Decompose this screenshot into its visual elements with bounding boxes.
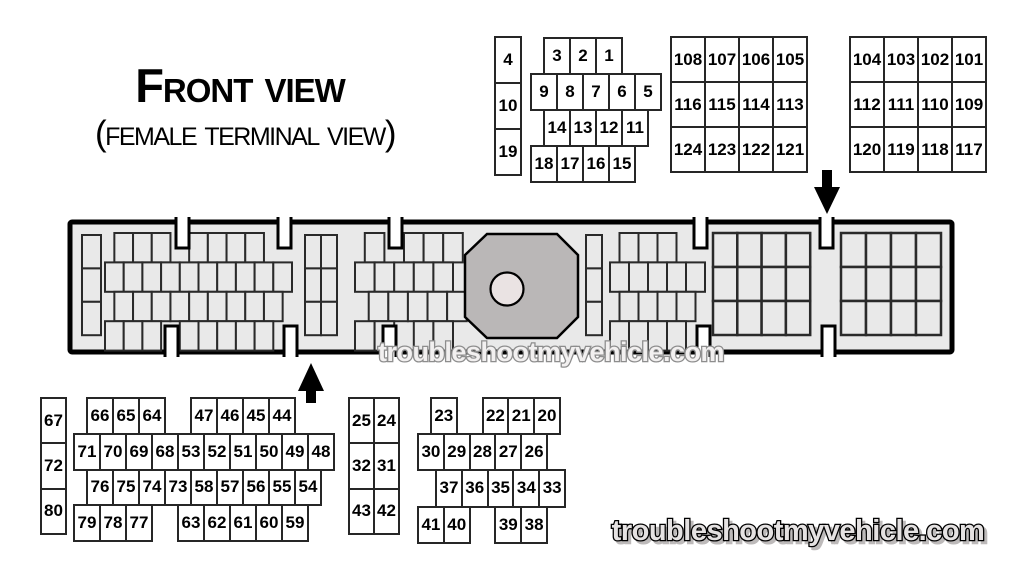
pin-cell-124: 124 [670, 126, 706, 173]
pin-cell-32: 32 [348, 442, 375, 489]
terminal-slot [443, 233, 463, 262]
terminal-slot [737, 233, 761, 267]
top-notch [694, 217, 707, 248]
terminal-slot [762, 233, 786, 267]
pin-cell-36: 36 [461, 469, 489, 507]
pin-cell-73: 73 [164, 469, 192, 507]
terminal-slot [152, 292, 171, 321]
pin-cell-113: 113 [772, 81, 808, 128]
pin-cell-103: 103 [883, 36, 919, 83]
pin-cell-60: 60 [255, 504, 283, 542]
pin-cell-68: 68 [151, 433, 179, 471]
pin-cell-61: 61 [229, 504, 257, 542]
pin-cell-118: 118 [917, 126, 953, 173]
terminal-slot [916, 301, 941, 335]
terminal-slot [124, 321, 143, 350]
terminal-slot [208, 233, 227, 262]
terminal-slot [189, 233, 208, 262]
terminal-slot [841, 301, 866, 335]
top-notch [278, 217, 291, 248]
terminal-slot [841, 267, 866, 301]
terminal-slot [180, 262, 199, 291]
terminal-slot [866, 267, 891, 301]
pin-cell-105: 105 [772, 36, 808, 83]
pin-cell-51: 51 [229, 433, 257, 471]
terminal-slot [713, 267, 737, 301]
bolt-hole [491, 273, 524, 306]
terminal-slot [189, 292, 208, 321]
terminal-slot [227, 292, 246, 321]
terminal-slot [355, 262, 375, 291]
pin-cell-48: 48 [307, 433, 335, 471]
pin-cell-11: 11 [621, 109, 649, 147]
pin-cell-39: 39 [494, 506, 522, 544]
terminal-slot [355, 321, 375, 350]
terminal-slot [891, 267, 916, 301]
pin-cell-79: 79 [73, 504, 101, 542]
pin-cell-57: 57 [216, 469, 244, 507]
terminal-slot [891, 233, 916, 267]
pin-cell-34: 34 [512, 469, 540, 507]
pin-cell-3: 3 [543, 37, 571, 75]
pin-cell-49: 49 [281, 433, 309, 471]
pin-cell-110: 110 [917, 81, 953, 128]
pin-cell-4: 4 [494, 36, 522, 84]
pin-cell-104: 104 [849, 36, 885, 83]
pin-cell-31: 31 [373, 442, 400, 489]
terminal-slot [142, 321, 161, 350]
terminal-slot [82, 268, 101, 301]
pin-cell-5: 5 [634, 73, 662, 111]
terminal-slot [305, 268, 321, 301]
pin-cell-53: 53 [177, 433, 205, 471]
pin-cell-116: 116 [670, 81, 706, 128]
pin-cell-76: 76 [86, 469, 114, 507]
terminal-slot [273, 262, 292, 291]
terminal-slot [255, 321, 274, 350]
top-notch [176, 217, 189, 248]
pin-cell-19: 19 [494, 128, 522, 176]
terminal-slot [786, 233, 810, 267]
top-notch [820, 217, 833, 248]
terminal-slot [428, 292, 448, 321]
terminal-slot [658, 233, 677, 262]
terminal-slot [82, 302, 101, 335]
up-arrow-icon [298, 363, 324, 403]
pin-cell-18: 18 [530, 145, 558, 183]
terminal-slot [199, 262, 218, 291]
pin-cell-58: 58 [190, 469, 218, 507]
terminal-slot [305, 235, 321, 268]
pin-cell-37: 37 [435, 469, 463, 507]
pin-cell-24: 24 [373, 397, 400, 444]
pin-cell-111: 111 [883, 81, 919, 128]
terminal-slot [152, 233, 171, 262]
bottom-notch [822, 326, 835, 357]
pin-cell-64: 64 [138, 397, 166, 435]
terminal-slot [245, 292, 264, 321]
pin-cell-78: 78 [99, 504, 127, 542]
terminal-slot [414, 262, 434, 291]
terminal-slot [114, 233, 133, 262]
terminal-slot [133, 233, 152, 262]
pin-cell-25: 25 [348, 397, 375, 444]
terminal-slot [305, 302, 321, 335]
pin-cell-77: 77 [125, 504, 153, 542]
pin-cell-20: 20 [533, 397, 561, 435]
pin-cell-75: 75 [112, 469, 140, 507]
terminal-slot [677, 292, 696, 321]
pin-cell-1: 1 [595, 37, 623, 75]
terminal-slot [866, 301, 891, 335]
pin-cell-114: 114 [738, 81, 774, 128]
pin-cell-22: 22 [482, 397, 510, 435]
pin-cell-63: 63 [177, 504, 205, 542]
terminal-slot [394, 262, 414, 291]
pin-cell-14: 14 [543, 109, 571, 147]
terminal-slot [658, 292, 677, 321]
pin-cell-43: 43 [348, 488, 375, 535]
terminal-slot [762, 267, 786, 301]
terminal-slot [841, 233, 866, 267]
terminal-slot [737, 301, 761, 335]
terminal-slot [236, 262, 255, 291]
pin-cell-38: 38 [520, 506, 548, 544]
pin-cell-10: 10 [494, 82, 522, 130]
pin-cell-117: 117 [951, 126, 987, 173]
terminal-slot [586, 302, 602, 335]
pin-cell-42: 42 [373, 488, 400, 535]
terminal-slot [199, 321, 218, 350]
pin-cell-69: 69 [125, 433, 153, 471]
terminal-slot [388, 292, 408, 321]
terminal-slot [586, 235, 602, 268]
terminal-slot [786, 301, 810, 335]
pin-cell-13: 13 [569, 109, 597, 147]
terminal-slot [321, 268, 337, 301]
pin-cell-115: 115 [704, 81, 740, 128]
pin-cell-121: 121 [772, 126, 808, 173]
pin-cell-33: 33 [538, 469, 566, 507]
terminal-slot [713, 233, 737, 267]
pin-cell-44: 44 [268, 397, 296, 435]
pin-cell-46: 46 [216, 397, 244, 435]
pin-cell-30: 30 [417, 433, 445, 471]
pin-cell-120: 120 [849, 126, 885, 173]
terminal-slot [629, 262, 648, 291]
terminal-slot [620, 292, 639, 321]
terminal-slot [667, 262, 686, 291]
bottom-notch [165, 326, 178, 357]
pin-cell-35: 35 [487, 469, 515, 507]
pin-cell-55: 55 [268, 469, 296, 507]
terminal-slot [82, 235, 101, 268]
terminal-slot [227, 233, 246, 262]
terminal-slot [236, 321, 255, 350]
pin-cell-107: 107 [704, 36, 740, 83]
watermark-middle: troubleshootmyvehicle.com [378, 337, 724, 367]
pin-cell-67: 67 [40, 397, 67, 444]
terminal-slot [161, 262, 180, 291]
watermark-bottom: troubleshootmyvehicle.com [612, 515, 985, 547]
pin-cell-123: 123 [704, 126, 740, 173]
pin-cell-108: 108 [670, 36, 706, 83]
terminal-slot [424, 233, 444, 262]
pin-cell-66: 66 [86, 397, 114, 435]
pin-cell-29: 29 [443, 433, 471, 471]
down-arrow-icon [814, 170, 840, 214]
diagram-canvas: Front View (Female Terminal View) troubl… [0, 0, 1024, 576]
terminal-slot [762, 301, 786, 335]
terminal-slot [713, 301, 737, 335]
pin-cell-8: 8 [556, 73, 584, 111]
terminal-slot [916, 267, 941, 301]
terminal-slot [786, 267, 810, 301]
terminal-slot [217, 262, 236, 291]
pin-cell-6: 6 [608, 73, 636, 111]
terminal-slot [648, 262, 667, 291]
terminal-slot [321, 235, 337, 268]
terminal-slot [264, 292, 283, 321]
pin-cell-15: 15 [608, 145, 636, 183]
pin-cell-56: 56 [242, 469, 270, 507]
pin-cell-52: 52 [203, 433, 231, 471]
top-notch [389, 217, 402, 248]
pin-cell-17: 17 [556, 145, 584, 183]
terminal-slot [245, 233, 264, 262]
terminal-slot [610, 262, 629, 291]
terminal-slot [369, 292, 389, 321]
pin-cell-122: 122 [738, 126, 774, 173]
terminal-slot [365, 233, 385, 262]
terminal-slot [408, 292, 428, 321]
terminal-slot [105, 321, 124, 350]
pin-cell-119: 119 [883, 126, 919, 173]
pin-cell-112: 112 [849, 81, 885, 128]
terminal-slot [639, 292, 658, 321]
pin-cell-72: 72 [40, 442, 67, 489]
terminal-slot [133, 292, 152, 321]
terminal-slot [124, 262, 143, 291]
pin-cell-109: 109 [951, 81, 987, 128]
terminal-slot [433, 262, 453, 291]
pin-cell-54: 54 [294, 469, 322, 507]
pin-cell-40: 40 [443, 506, 471, 544]
pin-cell-12: 12 [595, 109, 623, 147]
pin-cell-102: 102 [917, 36, 953, 83]
terminal-slot [180, 321, 199, 350]
pin-cell-106: 106 [738, 36, 774, 83]
pin-cell-101: 101 [951, 36, 987, 83]
terminal-slot [105, 262, 124, 291]
terminal-slot [321, 302, 337, 335]
pin-cell-70: 70 [99, 433, 127, 471]
terminal-slot [404, 233, 424, 262]
terminal-slot [375, 262, 395, 291]
pin-cell-23: 23 [430, 397, 458, 435]
terminal-slot [686, 262, 705, 291]
terminal-slot [737, 267, 761, 301]
terminal-slot [891, 301, 916, 335]
bottom-notch [284, 326, 297, 357]
pin-cell-7: 7 [582, 73, 610, 111]
connector-shape [70, 217, 952, 357]
pin-cell-21: 21 [507, 397, 535, 435]
pin-cell-45: 45 [242, 397, 270, 435]
terminal-slot [586, 268, 602, 301]
terminal-slot [217, 321, 236, 350]
terminal-slot [916, 233, 941, 267]
terminal-slot [170, 292, 189, 321]
pin-cell-26: 26 [520, 433, 548, 471]
terminal-slot [114, 292, 133, 321]
terminal-slot [620, 233, 639, 262]
pin-cell-47: 47 [190, 397, 218, 435]
pin-cell-27: 27 [494, 433, 522, 471]
pin-cell-80: 80 [40, 488, 67, 535]
pin-cell-59: 59 [281, 504, 309, 542]
pin-cell-2: 2 [569, 37, 597, 75]
pin-cell-41: 41 [417, 506, 445, 544]
terminal-slot [208, 292, 227, 321]
terminal-slot [255, 262, 274, 291]
terminal-slot [866, 233, 891, 267]
pin-cell-62: 62 [203, 504, 231, 542]
pin-cell-74: 74 [138, 469, 166, 507]
pin-cell-9: 9 [530, 73, 558, 111]
terminal-slot [639, 233, 658, 262]
pin-cell-28: 28 [469, 433, 497, 471]
pin-cell-71: 71 [73, 433, 101, 471]
pin-cell-16: 16 [582, 145, 610, 183]
terminal-slot [142, 262, 161, 291]
pin-cell-65: 65 [112, 397, 140, 435]
pin-cell-50: 50 [255, 433, 283, 471]
